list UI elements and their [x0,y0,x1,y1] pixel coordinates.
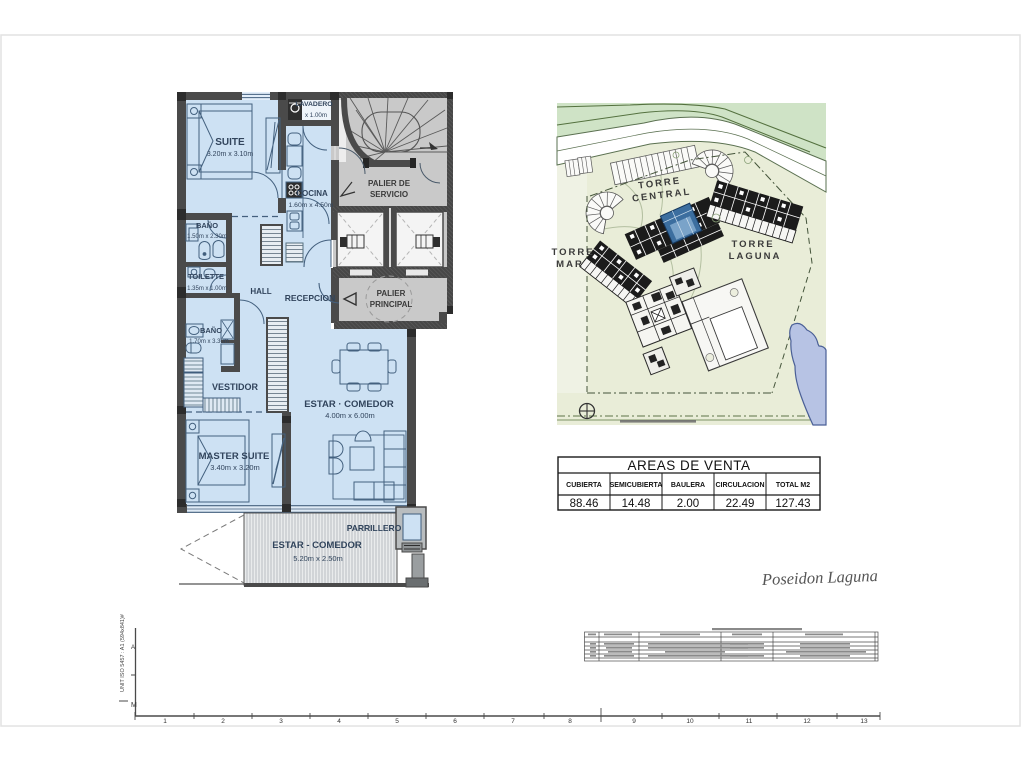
svg-text:10: 10 [686,718,694,725]
svg-text:13: 13 [860,718,868,725]
svg-text:7: 7 [511,718,515,725]
svg-text:11: 11 [746,718,753,725]
svg-text:TOTAL M2: TOTAL M2 [776,482,810,489]
svg-text:1.35m x 1.00m: 1.35m x 1.00m [187,286,227,292]
svg-text:127.43: 127.43 [775,498,810,510]
svg-text:1.50m x 2.30m: 1.50m x 2.30m [187,234,227,240]
svg-text:SERVICIO: SERVICIO [370,190,408,199]
svg-text:8: 8 [568,718,572,725]
svg-text:ESTAR · COMEDOR: ESTAR · COMEDOR [304,399,394,410]
svg-text:VESTIDOR: VESTIDOR [212,382,259,392]
svg-text:CIRCULACION: CIRCULACION [716,482,765,489]
svg-text:BAULERA: BAULERA [671,482,705,489]
svg-text:6: 6 [453,718,457,725]
svg-text:88.46: 88.46 [570,498,599,510]
svg-text:LAGUNA: LAGUNA [729,251,782,262]
svg-text:TORRE: TORRE [551,247,594,258]
svg-text:5: 5 [395,718,399,725]
svg-text:ESTAR - COMEDOR: ESTAR - COMEDOR [272,540,362,551]
svg-text:COCINA: COCINA [296,189,328,198]
svg-text:SUITE: SUITE [215,137,245,148]
svg-text:PRINCIPAL: PRINCIPAL [370,300,413,309]
svg-text:LAVADERO: LAVADERO [295,101,332,108]
svg-text:1: 1 [163,718,167,725]
svg-text:1.70m x 3.30m: 1.70m x 3.30m [189,339,229,345]
svg-text:RECEPCION: RECEPCION [285,293,336,303]
svg-text:HALL: HALL [250,287,271,296]
svg-text:PALIER DE: PALIER DE [368,179,411,188]
svg-text:MASTER SUITE: MASTER SUITE [199,451,270,462]
svg-text:MAR: MAR [556,259,584,270]
svg-text:CUBIERTA: CUBIERTA [566,482,602,489]
svg-text:3: 3 [279,718,283,725]
svg-text:M: M [131,702,137,709]
svg-text:2: 2 [221,718,225,725]
svg-text:AREAS DE VENTA: AREAS DE VENTA [627,458,750,473]
svg-text:1.60m x 4.50m: 1.60m x 4.50m [289,202,334,209]
svg-text:4.00m x 6.00m: 4.00m x 6.00m [325,411,375,420]
svg-text:x 1.00m: x 1.00m [305,112,327,119]
svg-text:PALIER: PALIER [377,289,406,298]
svg-text:TOILETTE: TOILETTE [188,272,224,281]
svg-text:PARRILLERO: PARRILLERO [347,523,402,533]
svg-text:UNIT ISO 5457 : A1 (594x841)#: UNIT ISO 5457 : A1 (594x841)# [120,613,126,692]
svg-text:TORRE: TORRE [731,239,774,250]
svg-text:BAÑO: BAÑO [196,221,218,230]
svg-text:22.49: 22.49 [726,498,755,510]
svg-text:2.00: 2.00 [677,498,699,510]
svg-text:BAÑO: BAÑO [200,326,222,335]
svg-text:12: 12 [803,718,811,725]
svg-text:9: 9 [632,718,636,725]
svg-text:SEMICUBIERTA: SEMICUBIERTA [610,482,663,489]
svg-text:3.40m x 3.20m: 3.40m x 3.20m [210,463,260,472]
svg-text:A: A [131,645,135,651]
svg-text:3.20m x 3.10m: 3.20m x 3.10m [207,151,253,158]
svg-text:14.48: 14.48 [622,498,651,510]
svg-text:4: 4 [337,718,341,725]
svg-text:5.20m x 2.50m: 5.20m x 2.50m [293,554,343,563]
